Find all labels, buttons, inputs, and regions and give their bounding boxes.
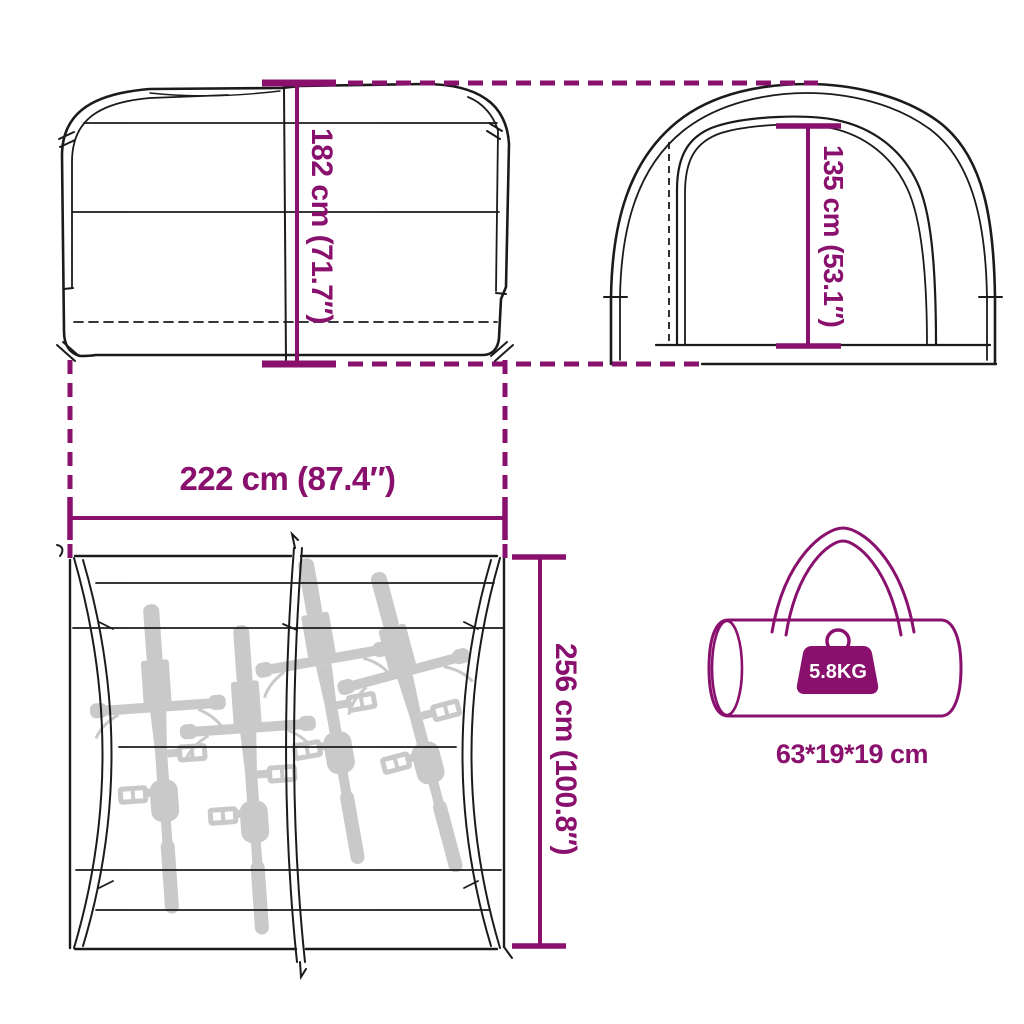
bag-end-cap [712,621,742,715]
top-view-depth-label: 256 cm (100.8″) [549,560,582,938]
front-view-height-label: 135 cm (53.1″) [817,128,848,344]
product-dimension-diagram: .cable{stroke:#C4C4C4;stroke-width:3;fil… [0,0,1024,1024]
bag-handle [772,528,914,632]
tent-top-view-drawing: .cable{stroke:#C4C4C4;stroke-width:3;fil… [57,534,523,977]
carry-bag-drawing [709,528,961,716]
bicycle-silhouette [311,555,523,890]
side-view-height-label: 182 cm (71.7″) [305,92,338,360]
top-view-width-label: 222 cm (87.4″) [70,461,505,497]
bicycle-silhouette [173,621,330,940]
bicycle-silhouettes: .cable{stroke:#C4C4C4;stroke-width:3;fil… [83,547,523,939]
tent-side-view-drawing [57,84,513,362]
bag-size-label: 63*19*19 cm [742,740,962,770]
bag-weight-label: 5.8KG [799,661,877,683]
